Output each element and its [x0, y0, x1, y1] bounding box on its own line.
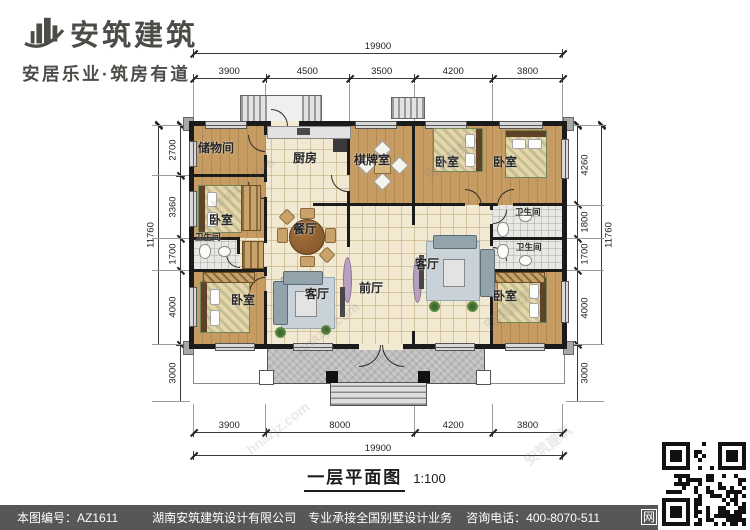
dim-label: 4260: [580, 154, 591, 175]
room-label: 卧室: [209, 211, 233, 228]
footer-bar: 本图编号：AZ1611 湖南安筑建筑设计有限公司 专业承接全国别墅设计业务 咨询…: [0, 505, 750, 530]
dim-label: 3000: [168, 362, 179, 383]
dim-segment: 3360: [168, 176, 184, 239]
room-label: 卫生间: [195, 231, 221, 243]
drawing-caption: 一层平面图1:100: [0, 463, 750, 492]
room-label: 储物间: [198, 139, 234, 156]
company-logo: 安筑建筑 安居乐业·筑房有道: [22, 12, 198, 86]
dining-chair: [325, 228, 336, 243]
dining-chair: [300, 208, 315, 219]
dim-label: 3500: [349, 66, 414, 77]
dim-label: 2700: [168, 140, 179, 161]
dim-top-segments: 3900 4500 3500 4200 3800: [193, 66, 563, 82]
entry-steps: [330, 382, 427, 406]
dim-label: 19900: [193, 41, 563, 52]
dim-segment: 4000: [574, 270, 590, 345]
dim-label: 4200: [414, 66, 492, 77]
dining-chair: [277, 228, 288, 243]
dim-segment: 1700: [168, 238, 184, 270]
dim-segment: 3500: [349, 66, 414, 82]
dim-label: 4000: [168, 297, 179, 318]
room-label: 卧室: [493, 153, 517, 170]
dim-segment: 4260: [574, 125, 590, 205]
dim-segment: 3000: [574, 345, 590, 401]
window: [499, 121, 543, 129]
window: [561, 281, 569, 323]
dim-label: 4500: [266, 66, 350, 77]
closet: [242, 241, 264, 269]
dim-label: 3000: [580, 362, 591, 383]
plant: [429, 301, 440, 312]
dim-top-overall: 19900: [193, 41, 563, 57]
dim-bottom-segments: 3900 8000 4200 3800: [193, 420, 563, 436]
window: [189, 287, 197, 327]
footer-phone: 咨询电话：400-8070-511: [466, 509, 600, 526]
porch-column: [476, 370, 491, 385]
dim-segment: 3900: [193, 66, 266, 82]
window: [189, 191, 197, 227]
dim-segment: 3000: [168, 345, 184, 401]
dim-label: 3360: [168, 196, 179, 217]
toilet: [497, 222, 509, 237]
dim-label: 1700: [580, 244, 591, 265]
kitchen-sink: [297, 128, 310, 135]
window: [189, 141, 197, 167]
dim-left-segments: 2700 3360 1700 4000 3000: [168, 125, 184, 401]
dim-right-segments: 4260 1800 1700 4000 3000: [574, 125, 590, 401]
plant: [467, 301, 478, 312]
dim-segment: 19900: [193, 41, 563, 57]
dim-left-overall: 11760: [146, 125, 162, 345]
footer-service: 专业承接全国别墅设计业务: [308, 509, 452, 526]
room-label: 客厅: [305, 285, 329, 302]
dim-segment: 3900: [193, 420, 266, 436]
room-label: 卫生间: [516, 241, 542, 253]
dim-segment: 4500: [266, 66, 350, 82]
drawing-title: 一层平面图: [304, 463, 405, 492]
window: [215, 343, 255, 351]
dining-chair: [300, 256, 315, 267]
dim-segment: 4200: [414, 420, 492, 436]
toilet: [497, 244, 509, 259]
dim-label: 1700: [168, 244, 179, 265]
room-label: 厨房: [293, 149, 317, 166]
qr-label: 网: [641, 509, 657, 525]
dim-segment: 1700: [574, 238, 590, 270]
toilet: [199, 244, 211, 259]
wardrobe: [495, 272, 545, 283]
room-label: 棋牌室: [354, 151, 390, 168]
dim-segment: 2700: [168, 125, 184, 176]
company-name: 安筑建筑: [70, 12, 198, 54]
window: [561, 139, 569, 179]
dim-label: 1800: [580, 211, 591, 232]
dim-label: 11760: [146, 222, 157, 248]
window: [205, 121, 247, 129]
dim-label: 4000: [580, 297, 591, 318]
room-label: 卧室: [231, 291, 255, 308]
dim-segment: 1800: [574, 205, 590, 239]
sofa: [273, 281, 288, 325]
porch-column: [418, 371, 430, 383]
sofa: [433, 235, 477, 249]
footer-company: 湖南安筑建筑设计有限公司: [152, 509, 296, 526]
dim-right-overall: 11760: [598, 125, 614, 345]
sink-basin: [519, 255, 532, 266]
room-label: 卫生间: [515, 206, 541, 218]
plant: [275, 327, 286, 338]
planter: [391, 97, 425, 119]
company-tagline: 安居乐业·筑房有道: [22, 61, 198, 86]
dim-segment: 4000: [168, 270, 184, 345]
sofa: [283, 271, 323, 285]
porch-column: [326, 371, 338, 383]
dim-segment: 11760: [598, 125, 614, 345]
dim-segment: 3800: [492, 66, 563, 82]
dining-chair: [319, 247, 336, 264]
room-label: 餐厅: [293, 220, 317, 237]
dim-label: 4200: [414, 420, 492, 431]
kitchen-stove: [333, 139, 347, 152]
wardrobe: [203, 272, 255, 283]
qr-code: [658, 437, 750, 530]
dim-segment: 11760: [146, 125, 162, 345]
window: [505, 343, 545, 351]
dim-segment: 4200: [414, 66, 492, 82]
dim-label: 11760: [604, 222, 615, 248]
drawing-scale: 1:100: [413, 471, 446, 486]
dim-label: 3900: [193, 66, 266, 77]
coffee-table: [443, 259, 465, 287]
logo-building-icon: [22, 14, 66, 52]
room-label: 前厅: [359, 279, 383, 296]
floor-plan-sheet: 安筑建筑 安居乐业·筑房有道 19900 3900 4500 3500 4200…: [0, 0, 750, 530]
dim-label: 3900: [193, 420, 266, 431]
drawing-number: 本图编号：AZ1611: [17, 509, 118, 526]
window: [355, 121, 397, 129]
window: [435, 343, 475, 351]
porch-column: [259, 370, 274, 385]
room-label: 客厅: [415, 255, 439, 272]
sink-basin: [218, 246, 231, 257]
dim-label: 3800: [492, 66, 563, 77]
